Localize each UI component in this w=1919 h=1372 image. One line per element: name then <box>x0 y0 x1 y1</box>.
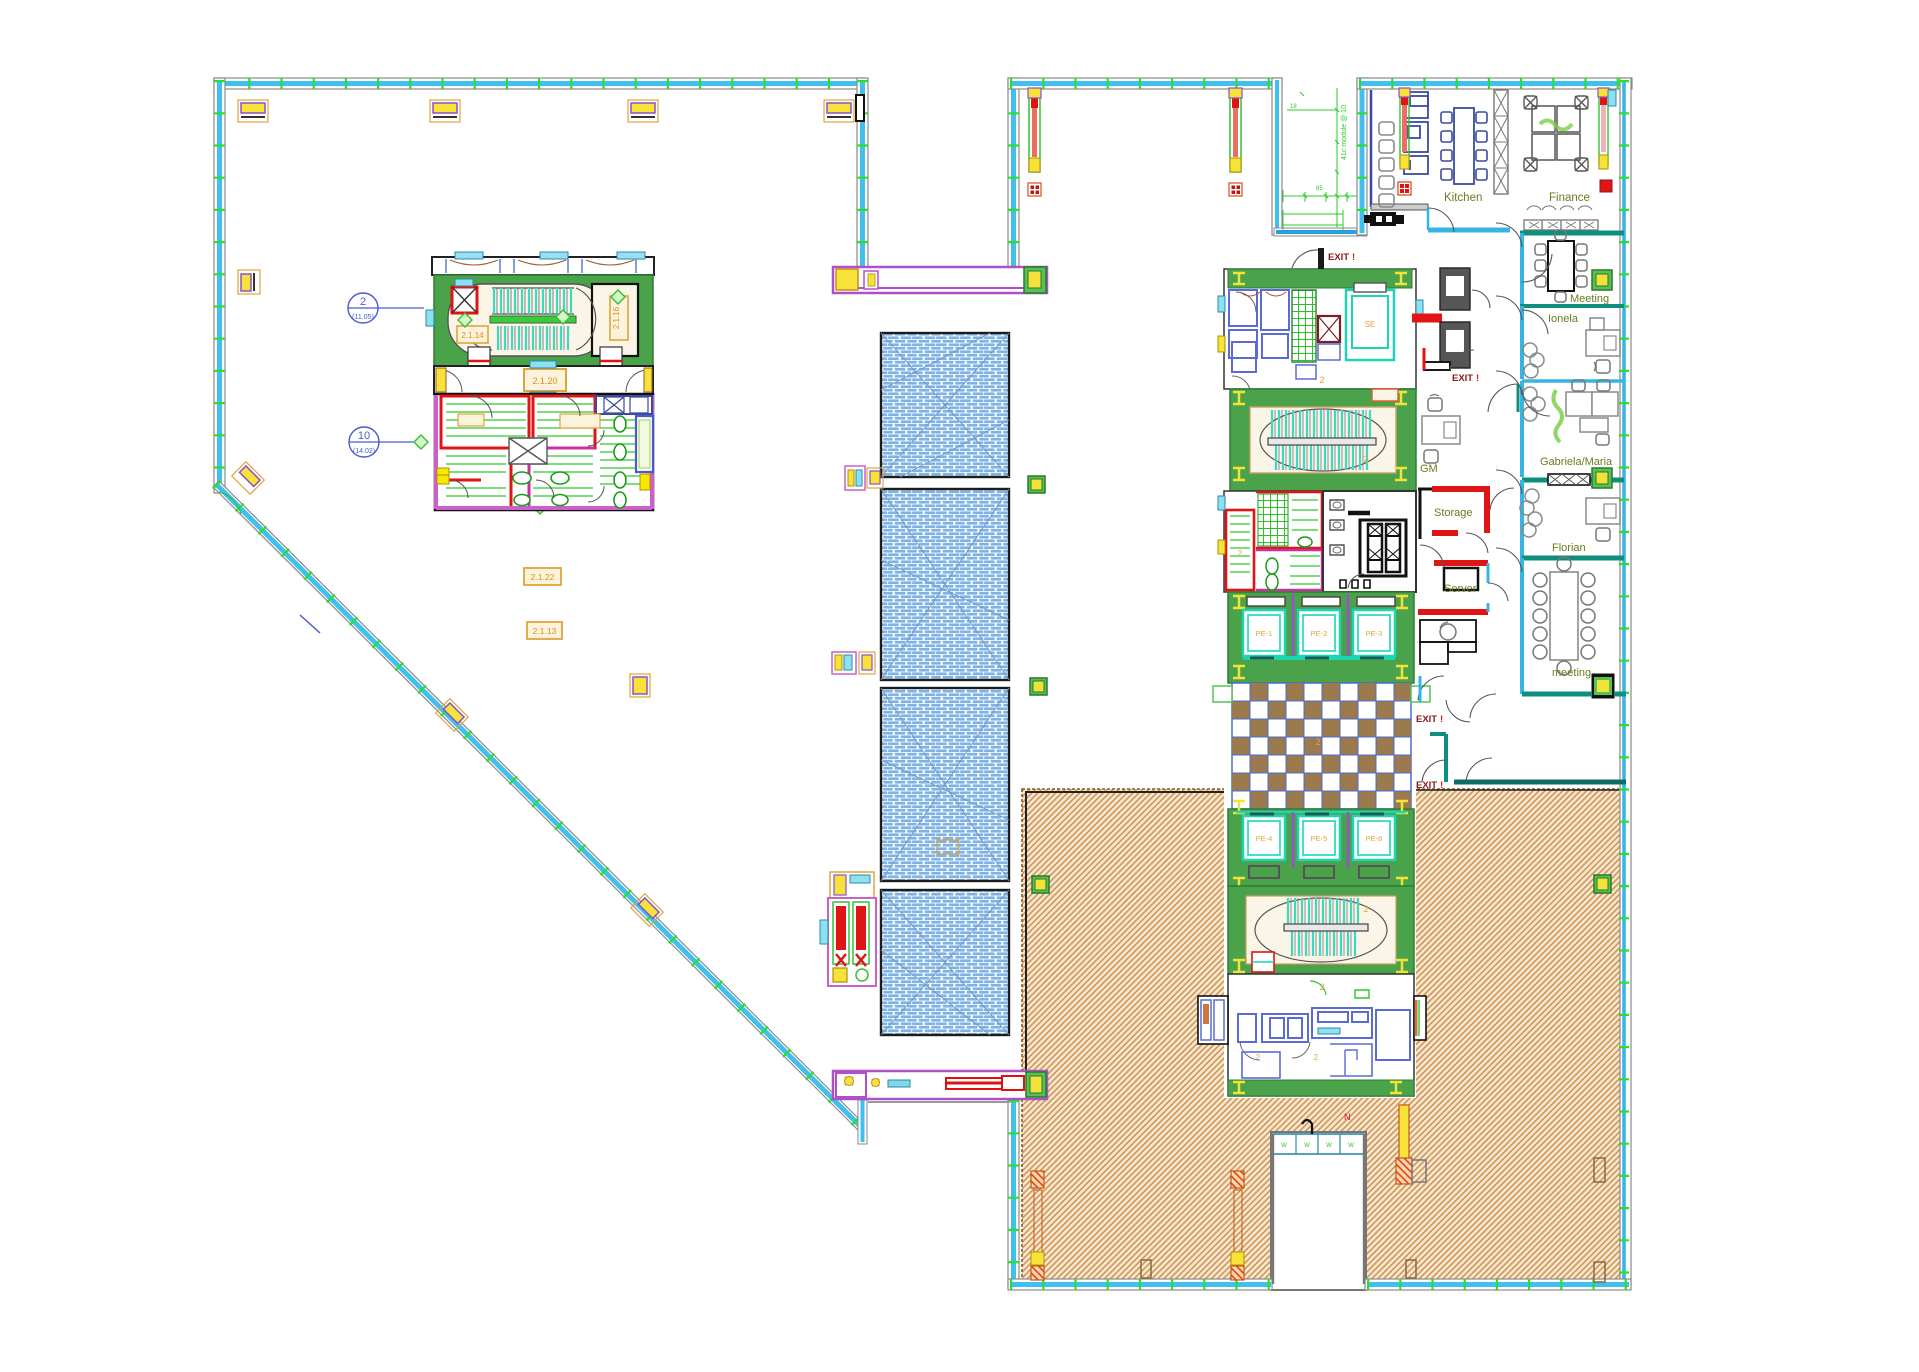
svg-text:Finance: Finance <box>1549 192 1590 204</box>
svg-text:2: 2 <box>1363 904 1368 914</box>
svg-text:N: N <box>1344 1112 1351 1122</box>
svg-text:W: W <box>1304 1143 1310 1149</box>
svg-text:18: 18 <box>1290 104 1297 110</box>
svg-text:EXIT: EXIT <box>1416 780 1437 791</box>
svg-text:2: 2 <box>1363 454 1368 464</box>
svg-text:2.1.16: 2.1.16 <box>612 306 621 329</box>
svg-text:(11.05): (11.05) <box>352 314 374 321</box>
svg-text:Kitchen: Kitchen <box>1444 192 1482 204</box>
svg-text:!: ! <box>1352 252 1355 263</box>
svg-text:W: W <box>1281 1143 1287 1149</box>
svg-text:(14.02): (14.02) <box>353 448 375 455</box>
svg-text:Server: Server <box>1444 583 1477 595</box>
svg-text:85: 85 <box>1316 186 1323 192</box>
svg-text:PE-6: PE-6 <box>1366 834 1383 843</box>
svg-text:EXIT: EXIT <box>1416 714 1437 725</box>
svg-text:PE-1: PE-1 <box>1256 629 1273 638</box>
svg-text:2.1.13: 2.1.13 <box>533 626 557 636</box>
svg-text:W: W <box>1348 1143 1354 1149</box>
svg-text:2.1.22: 2.1.22 <box>531 572 555 582</box>
svg-text:Storage: Storage <box>1434 507 1473 519</box>
svg-text:PE-4: PE-4 <box>1256 834 1273 843</box>
svg-text:10: 10 <box>358 430 370 442</box>
svg-text:2: 2 <box>1238 549 1243 558</box>
svg-text:Florian: Florian <box>1552 542 1586 554</box>
svg-text:2: 2 <box>1314 1053 1319 1062</box>
svg-text:PE-3: PE-3 <box>1366 629 1383 638</box>
svg-text:Ionela: Ionela <box>1548 313 1579 325</box>
svg-text:2: 2 <box>1319 375 1324 385</box>
svg-text:!: ! <box>1440 780 1443 791</box>
svg-text:GM: GM <box>1420 463 1438 475</box>
svg-text:2.1.20: 2.1.20 <box>532 376 557 386</box>
svg-text:!: ! <box>1440 714 1443 725</box>
svg-text:Meeting: Meeting <box>1570 293 1609 305</box>
svg-text:W: W <box>1326 1143 1332 1149</box>
svg-text:2: 2 <box>1256 1053 1261 1062</box>
svg-text:EXIT: EXIT <box>1328 252 1349 263</box>
svg-text:Gabriela/Maria: Gabriela/Maria <box>1540 456 1613 468</box>
svg-text:2: 2 <box>1315 737 1320 747</box>
svg-text:41c module @ 10: 41c module @ 10 <box>1341 105 1348 160</box>
svg-text:2.1.14: 2.1.14 <box>461 331 484 340</box>
svg-text:meeting: meeting <box>1552 667 1591 679</box>
svg-text:2: 2 <box>360 296 366 308</box>
svg-text:EXIT: EXIT <box>1452 373 1473 384</box>
svg-text:SE: SE <box>1365 320 1376 329</box>
svg-text:PE-5: PE-5 <box>1311 834 1328 843</box>
svg-text:PE-2: PE-2 <box>1311 629 1328 638</box>
svg-text:!: ! <box>1476 373 1479 384</box>
